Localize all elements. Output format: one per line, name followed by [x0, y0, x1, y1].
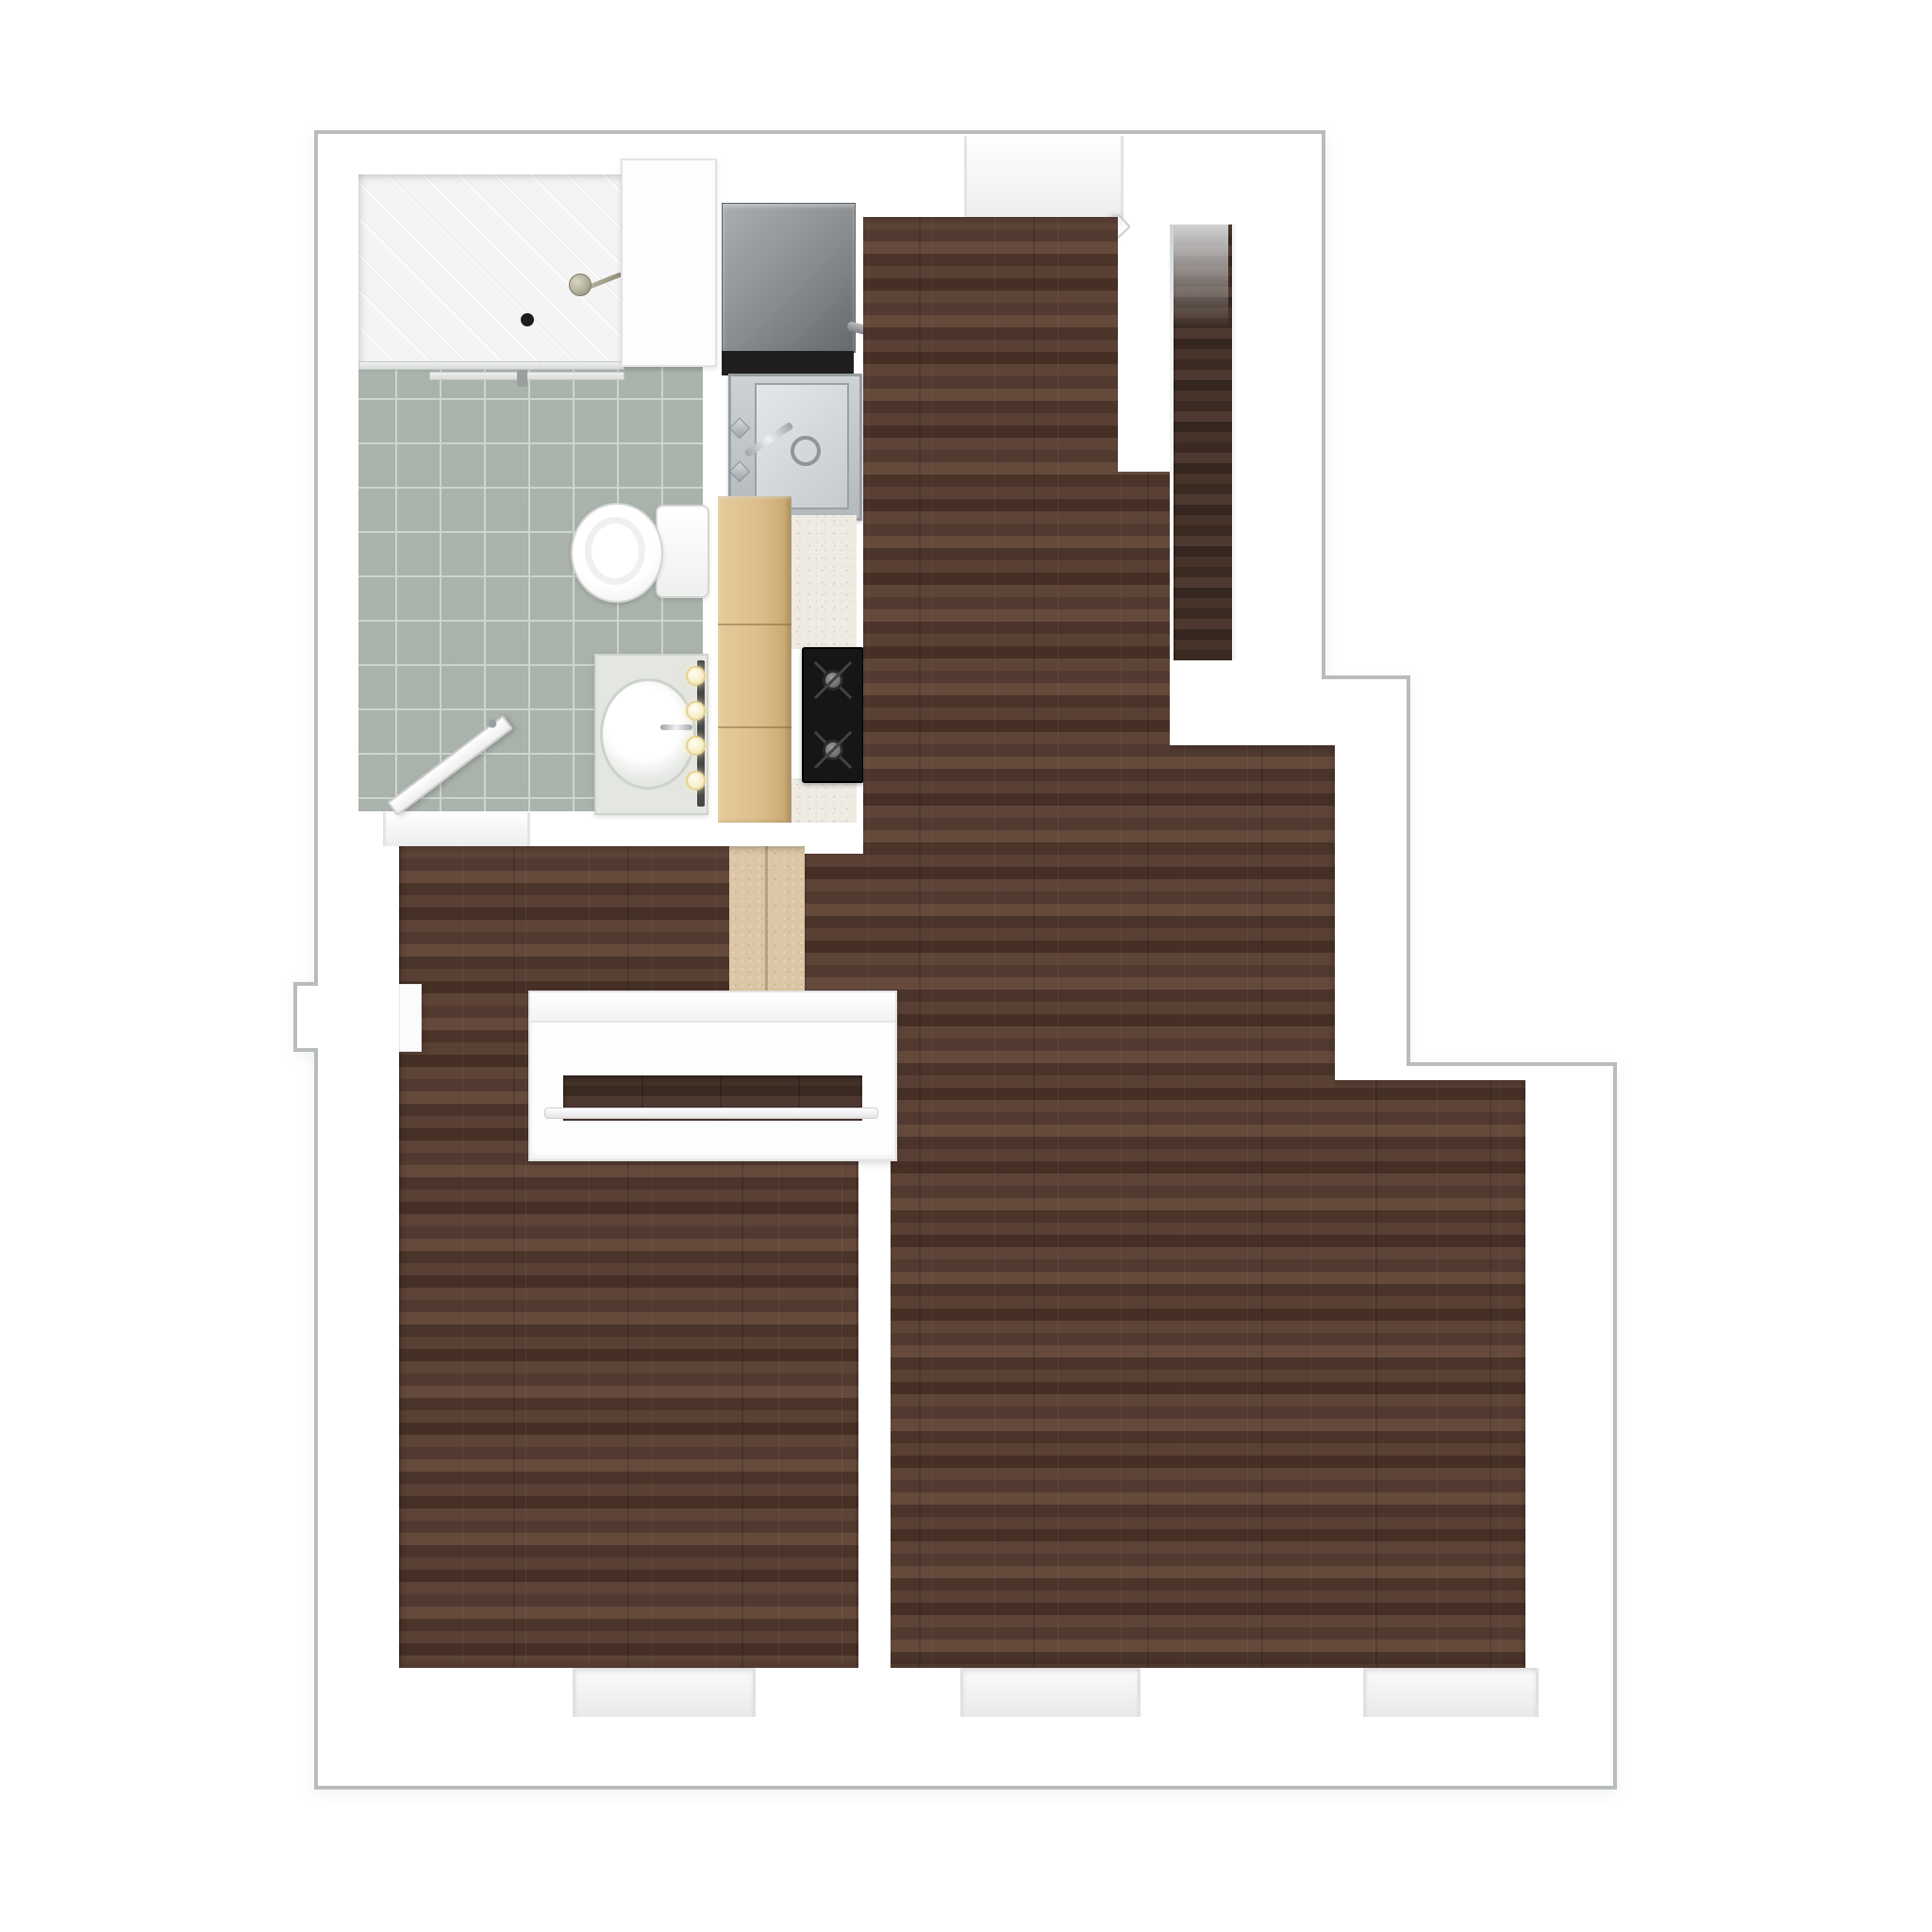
kitchen-stove — [802, 647, 864, 783]
floor-shadow — [1170, 745, 1335, 755]
vanity-light-icon — [686, 701, 706, 721]
bathroom-storage-cabinet — [621, 158, 717, 367]
bedroom-wardrobe — [528, 991, 897, 1161]
radiator-niche — [399, 984, 422, 1052]
entry-door-opening — [964, 136, 1124, 219]
floor-shadow — [1335, 1080, 1525, 1090]
hallway-floor — [729, 846, 805, 991]
floor-shadow — [399, 846, 408, 1668]
toilet-seat — [585, 517, 645, 585]
floor-shadow — [1518, 1082, 1525, 1667]
burner-icon — [808, 655, 858, 706]
floor-shadow — [729, 846, 805, 854]
wardrobe-rod — [544, 1108, 878, 1119]
shower-glass-door — [358, 361, 625, 370]
vanity-light-icon — [686, 736, 706, 756]
burner-icon — [808, 724, 858, 775]
wardrobe-top-band — [530, 992, 895, 1023]
window-recess-living-left — [960, 1668, 1141, 1717]
floor-shadow — [399, 1657, 858, 1668]
vanity-light-icon — [686, 666, 706, 686]
bathroom-door-opening — [383, 812, 530, 846]
window-recess-bedroom — [573, 1668, 756, 1717]
toilet-tank — [656, 505, 709, 598]
kitchen-cabinets — [718, 496, 791, 823]
kitchen-countertop-lower — [791, 778, 857, 823]
floor-shadow — [1327, 747, 1335, 1080]
cabinet-seam — [718, 726, 791, 728]
kitchen-countertop-upper — [791, 515, 857, 649]
cabinet-seam — [718, 624, 791, 625]
shower-drain-icon — [521, 313, 534, 326]
shower-head-icon — [569, 274, 591, 296]
vanity-faucet — [660, 724, 692, 730]
vanity-sink — [600, 678, 696, 790]
closet-shelf-shade — [1170, 225, 1228, 328]
shower-floor — [358, 175, 623, 363]
appliance-front — [722, 351, 854, 375]
floor-shadow — [399, 846, 729, 855]
shower-door-handle — [517, 370, 527, 387]
floor-shadow — [863, 217, 1118, 226]
floorplan-canvas — [0, 0, 1932, 1932]
sink-drain-icon — [791, 436, 821, 466]
window-recess-living-right — [1363, 1668, 1539, 1717]
vanity-light-icon — [686, 771, 706, 791]
floor-shadow — [891, 1657, 1525, 1668]
kitchen-refrigerator — [722, 203, 856, 353]
